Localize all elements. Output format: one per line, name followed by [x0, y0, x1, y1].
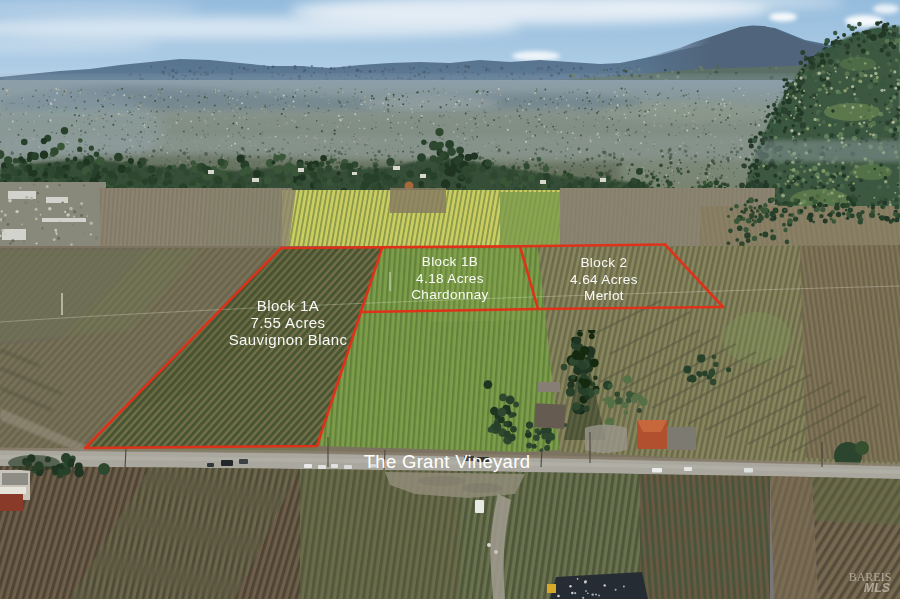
svg-text:Block 2: Block 2 — [580, 255, 627, 270]
svg-text:7.55 Acres: 7.55 Acres — [251, 314, 326, 331]
svg-text:4.18 Acres: 4.18 Acres — [416, 271, 484, 286]
svg-text:Merlot: Merlot — [584, 288, 624, 303]
svg-text:Block 1B: Block 1B — [422, 254, 478, 269]
svg-text:MLS: MLS — [864, 581, 891, 595]
svg-text:Block 1A: Block 1A — [257, 297, 319, 314]
svg-text:The Grant Vineyard: The Grant Vineyard — [364, 451, 531, 472]
svg-text:Sauvignon Blanc: Sauvignon Blanc — [229, 331, 348, 348]
svg-text:4.64 Acres: 4.64 Acres — [570, 272, 638, 287]
svg-text:Chardonnay: Chardonnay — [411, 287, 489, 302]
